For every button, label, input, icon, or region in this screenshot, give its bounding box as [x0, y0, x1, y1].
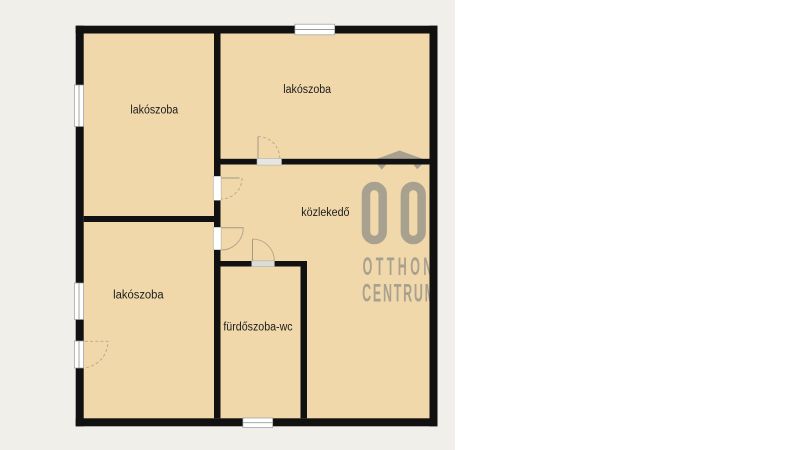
svg-text:közlekedő: közlekedő — [301, 207, 349, 219]
svg-text:lakószoba: lakószoba — [283, 84, 331, 96]
svg-text:OTTHON: OTTHON — [363, 253, 436, 281]
svg-text:fürdőszoba-wc: fürdőszoba-wc — [223, 322, 293, 334]
svg-text:lakószoba: lakószoba — [130, 105, 178, 117]
svg-text:CENTRUM: CENTRUM — [362, 280, 437, 308]
svg-text:lakószoba: lakószoba — [113, 290, 164, 302]
